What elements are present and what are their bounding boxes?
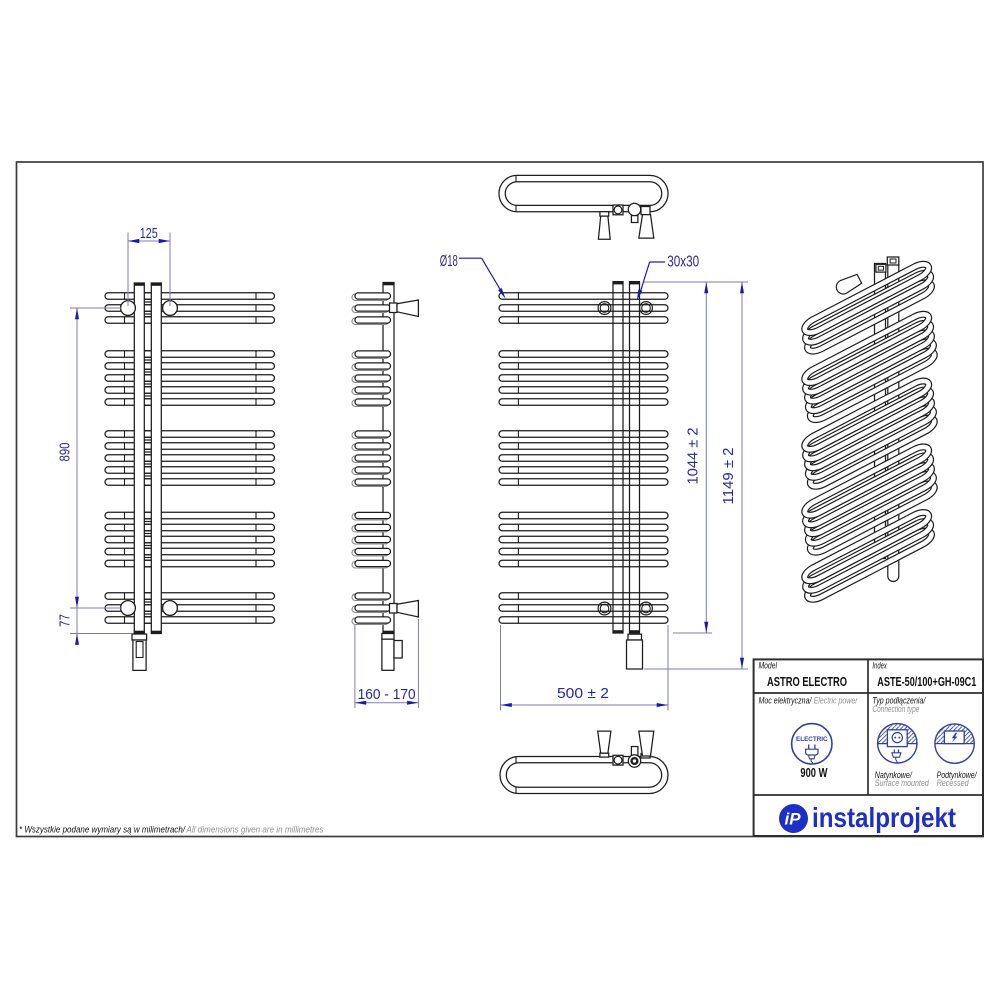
svg-text:Model: Model: [759, 661, 778, 672]
svg-text:Moc elektryczna/: Moc elektryczna/: [759, 696, 813, 707]
svg-text:ASTRO ELECTRO: ASTRO ELECTRO: [767, 674, 847, 689]
svg-text:160 - 170: 160 - 170: [358, 686, 416, 703]
svg-text:Ø18: Ø18: [440, 253, 458, 270]
svg-text:Index: Index: [872, 661, 887, 672]
svg-text:900 W: 900 W: [800, 766, 827, 780]
svg-text:500 ± 2: 500 ± 2: [557, 685, 609, 702]
svg-text:iP: iP: [784, 810, 801, 829]
svg-text:1044 ± 2: 1044 ± 2: [685, 428, 702, 485]
svg-text:ASTE-50/100+GH-09C1: ASTE-50/100+GH-09C1: [877, 675, 976, 689]
svg-text:Surface mounted: Surface mounted: [875, 778, 930, 789]
svg-text:Electric power: Electric power: [814, 696, 859, 707]
svg-text:Connection type: Connection type: [872, 704, 919, 715]
svg-text:30x30: 30x30: [667, 254, 699, 271]
svg-text:Recessed: Recessed: [937, 778, 970, 789]
svg-text:All dimensions given are in mi: All dimensions given are in millimetres: [186, 825, 324, 836]
svg-text:1149 ± 2: 1149 ± 2: [720, 448, 737, 505]
svg-text:* Wszystkie podane wymiary są: * Wszystkie podane wymiary są w milimetr…: [19, 825, 186, 836]
svg-text:ELECTRIC: ELECTRIC: [796, 736, 828, 743]
svg-text:890: 890: [57, 443, 74, 462]
svg-text:instalprojekt: instalprojekt: [812, 802, 956, 833]
svg-text:77: 77: [57, 614, 74, 627]
svg-text:125: 125: [140, 225, 158, 242]
